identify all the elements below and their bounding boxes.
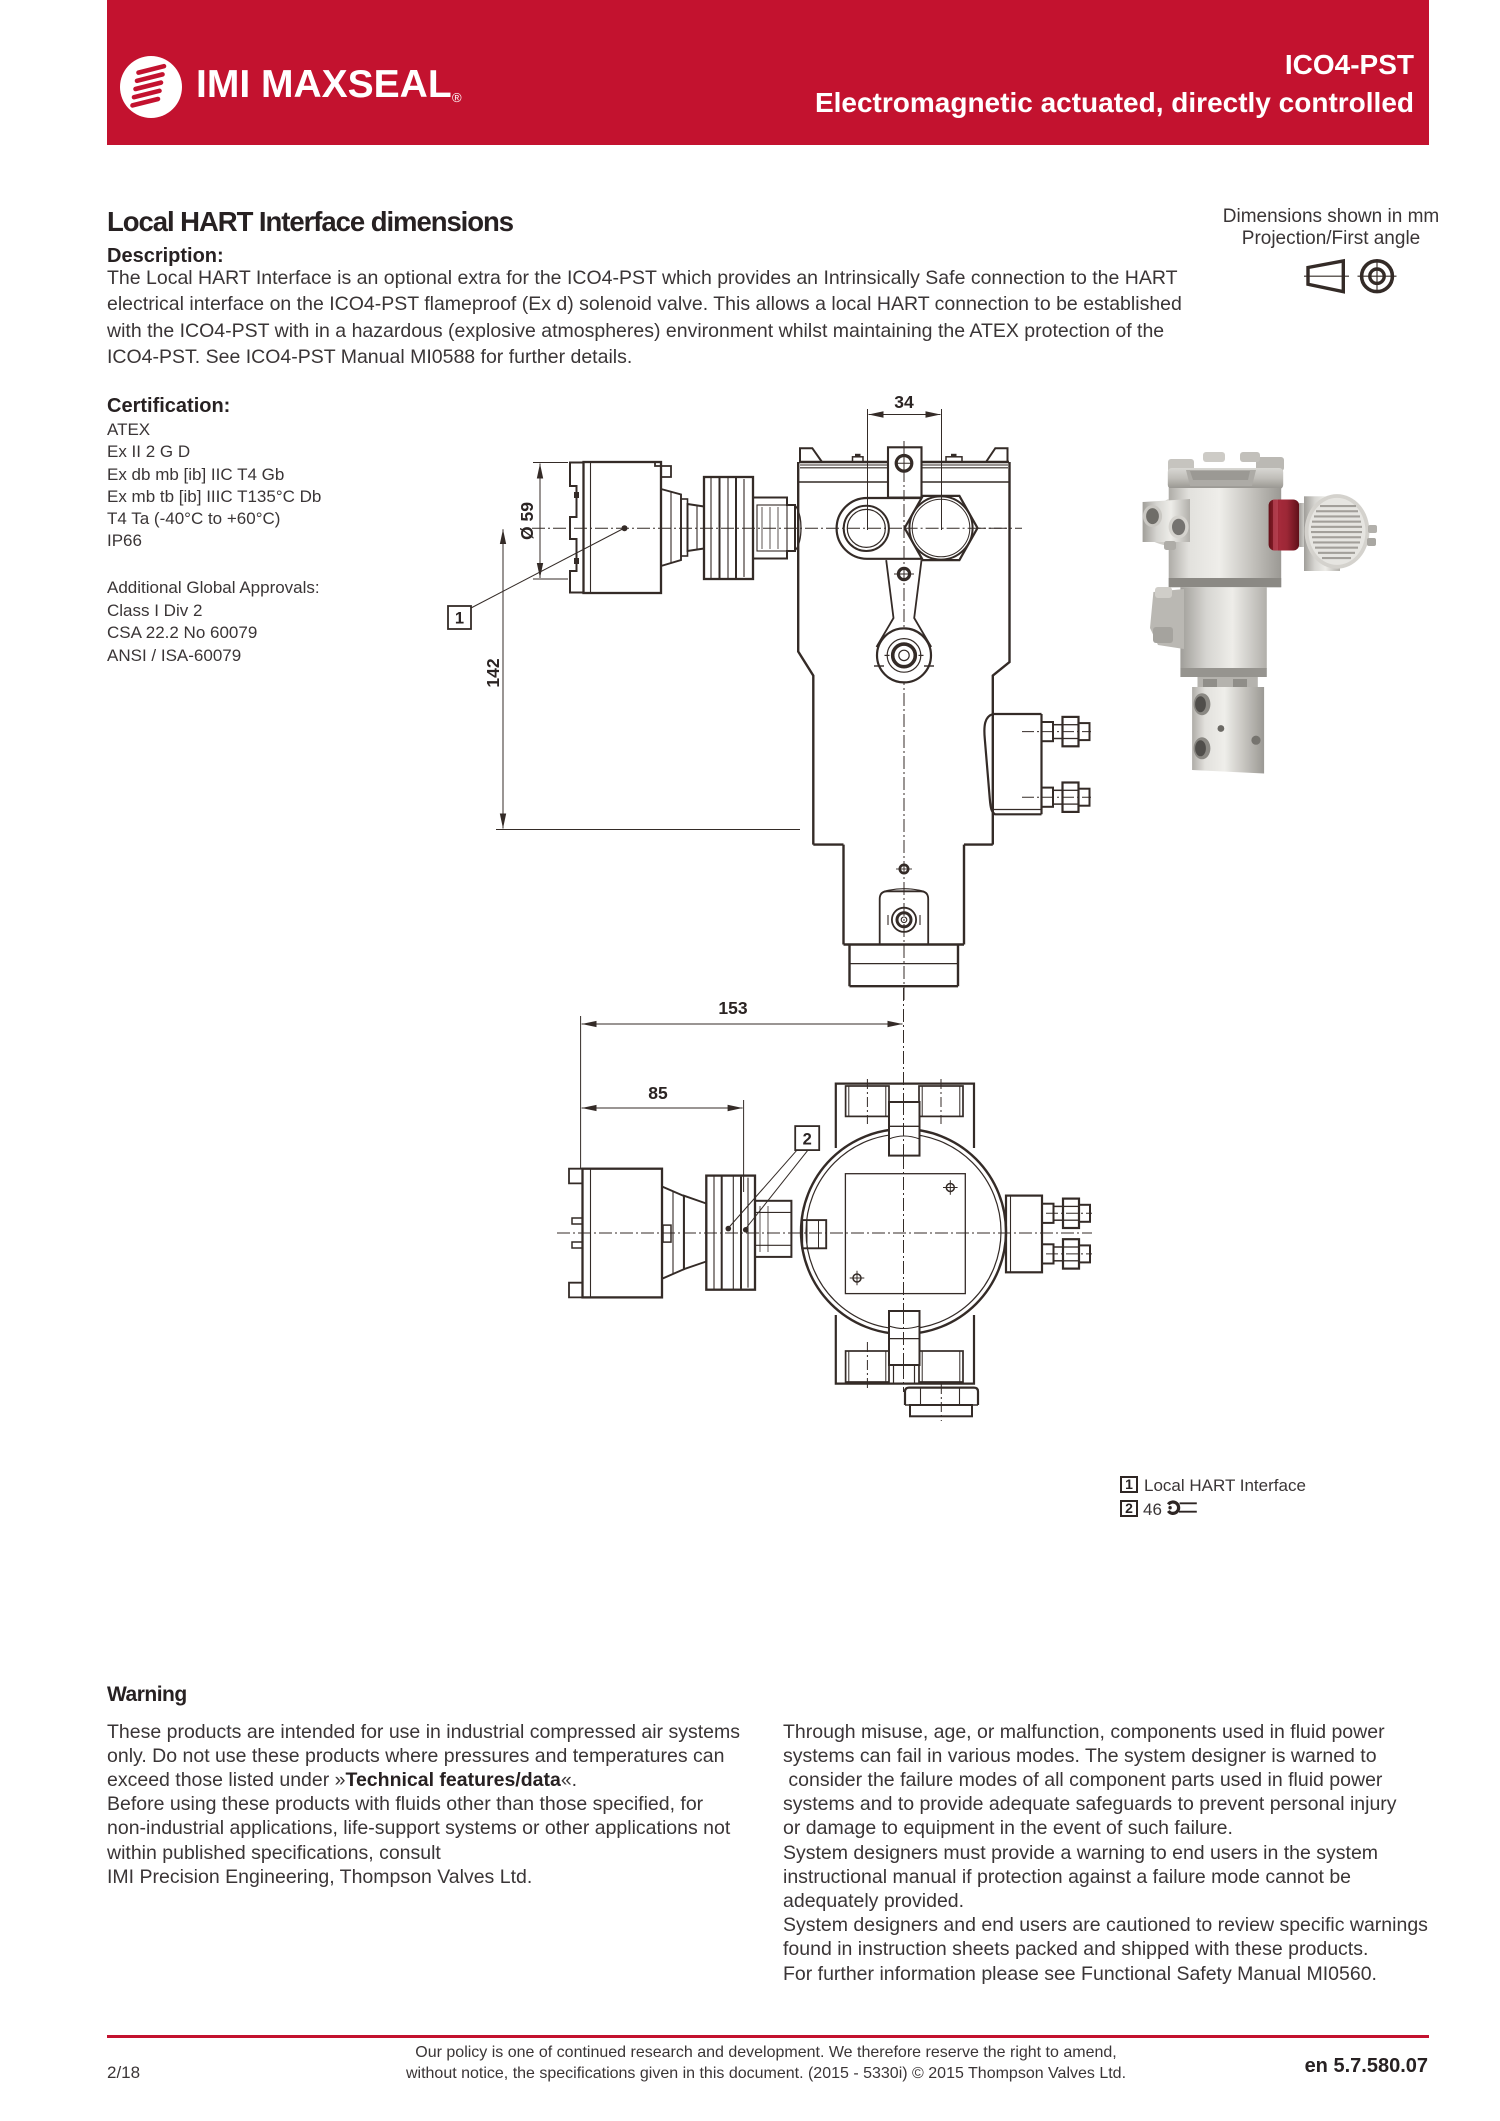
svg-text:1: 1	[455, 610, 464, 628]
svg-text:2: 2	[803, 1131, 812, 1149]
svg-text:142: 142	[483, 658, 503, 687]
svg-text:153: 153	[718, 998, 747, 1018]
svg-text:Ø 59: Ø 59	[517, 502, 537, 540]
svg-text:34: 34	[894, 392, 914, 412]
svg-text:85: 85	[648, 1083, 668, 1103]
